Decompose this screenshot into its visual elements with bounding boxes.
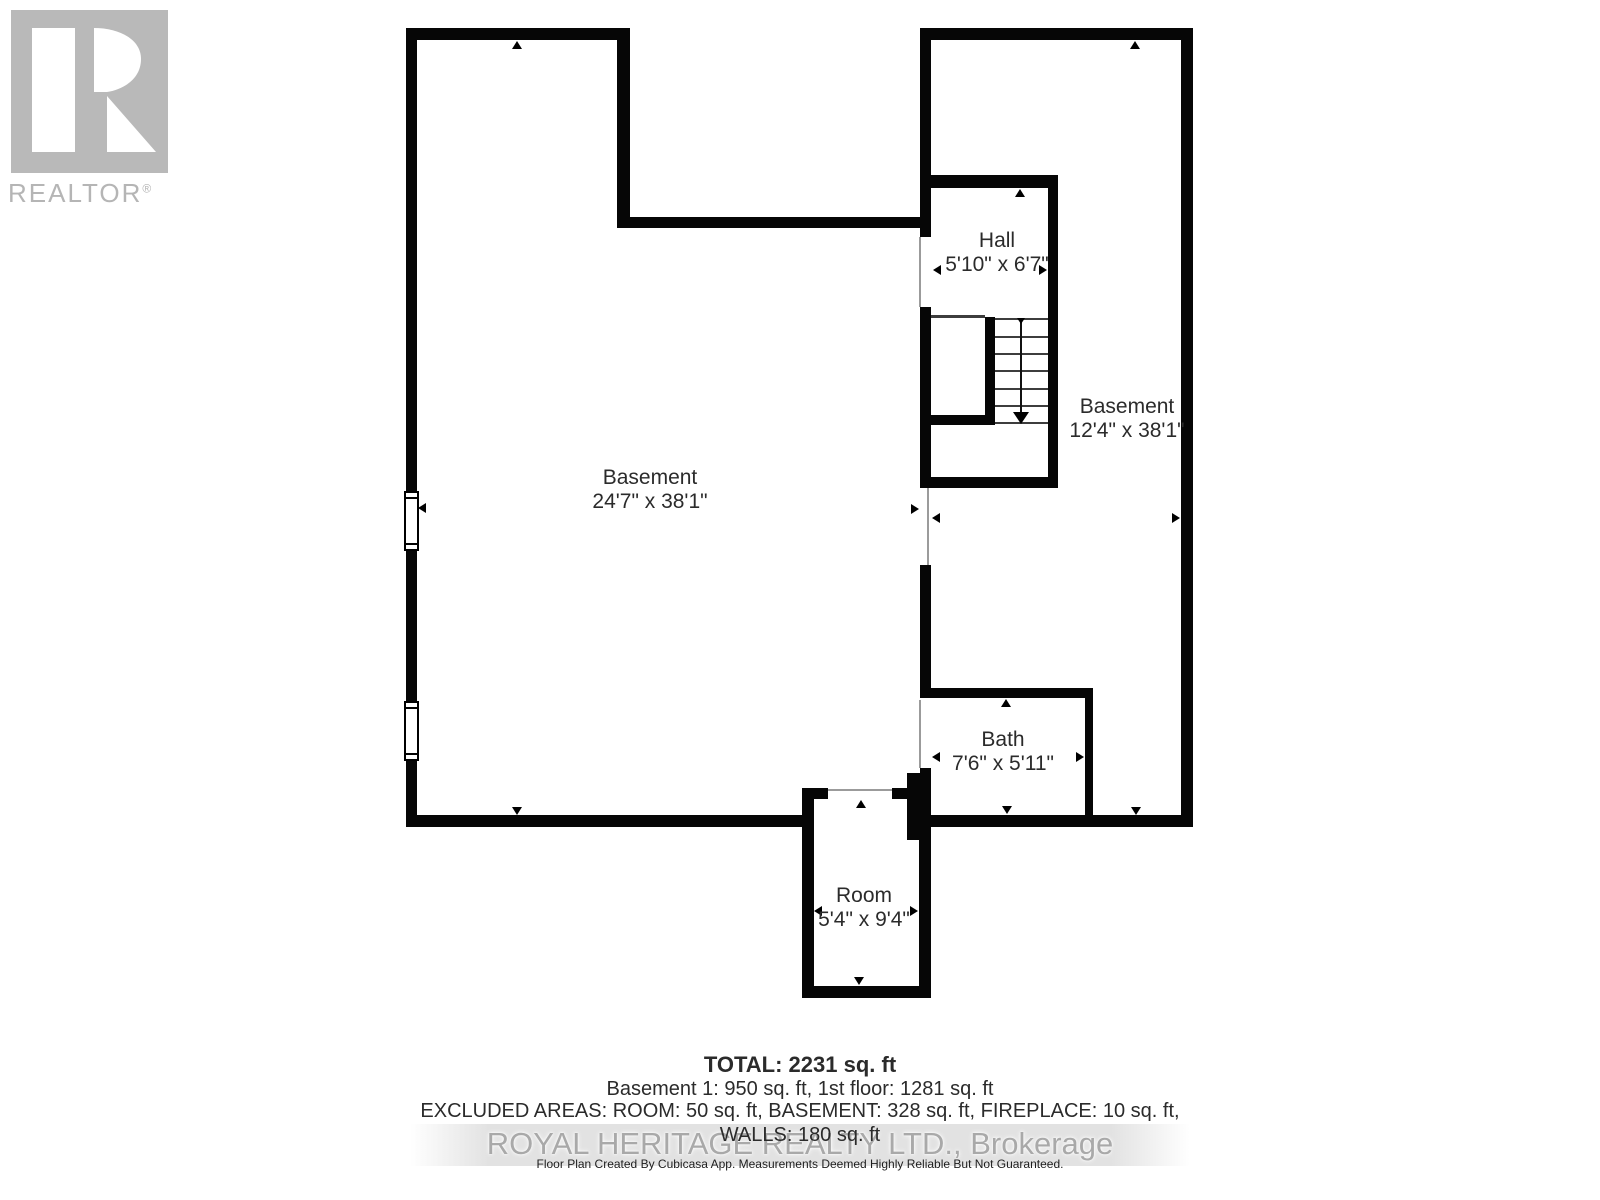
door-opening-hall (919, 237, 921, 307)
wall-top-right-section (920, 28, 1193, 40)
wall-notch-vertical (617, 28, 630, 228)
room-label-room: Room 5'4" x 9'4" (794, 884, 934, 932)
wall-room-bottom (802, 986, 931, 998)
room-dimensions: 7'6" x 5'11" (923, 752, 1083, 776)
room-dimensions: 5'4" x 9'4" (794, 908, 934, 932)
wall-understair-box-right (985, 317, 995, 425)
summary-walls: WALLS: 180 sq. ft (400, 1124, 1200, 1147)
room-dimensions: 12'4" x 38'1" (1027, 419, 1227, 443)
window (404, 701, 419, 761)
realtor-wordmark: REALTOR (8, 178, 142, 208)
wall-bath-top (920, 688, 1092, 698)
wall-bottom-left (406, 815, 802, 827)
room-label-hall: Hall 5'10" x 6'7" (927, 229, 1067, 277)
wall-top-left-section (406, 28, 630, 40)
wall-central-seg1 (920, 28, 931, 237)
measure-arrow-up-icon (1001, 699, 1011, 707)
measure-arrow-down-icon (1131, 807, 1141, 815)
window (404, 491, 419, 551)
realtor-logo-text: REALTOR® (8, 178, 198, 209)
realtor-logo (11, 10, 168, 178)
measure-arrow-up-icon (856, 800, 866, 808)
wall-room-top-stub-right (892, 788, 907, 799)
room-dimensions: 24'7" x 38'1" (550, 490, 750, 514)
wall-bath-right (1085, 688, 1093, 827)
measure-arrow-right-icon (1172, 513, 1180, 523)
room-label-basement-left: Basement 24'7" x 38'1" (550, 466, 750, 514)
measure-arrow-right-icon (911, 504, 919, 514)
measure-arrow-up-icon (1130, 41, 1140, 49)
room-label-basement-right: Basement 12'4" x 38'1" (1027, 395, 1227, 443)
wall-central-seg3 (920, 565, 931, 698)
summary-excluded: EXCLUDED AREAS: ROOM: 50 sq. ft, BASEMEN… (400, 1100, 1200, 1123)
door-opening-bath (919, 700, 921, 768)
door-opening-basements (927, 488, 929, 565)
summary-floors: Basement 1: 950 sq. ft, 1st floor: 1281 … (400, 1078, 1200, 1101)
registered-trademark-symbol: ® (142, 181, 153, 195)
wall-stair-enclosure-bottom (920, 477, 1058, 488)
wall-bottom-right (907, 815, 1193, 827)
stairs-direction-line (1020, 320, 1022, 416)
measure-arrow-down-icon (1002, 806, 1012, 814)
wall-room-top-stub-left (813, 788, 828, 799)
room-name: Basement (1027, 395, 1227, 419)
measure-arrow-up-icon (1015, 189, 1025, 197)
room-label-bath: Bath 7'6" x 5'11" (923, 728, 1083, 776)
stairs-start-tick-icon (1017, 318, 1025, 324)
measure-arrow-down-icon (854, 977, 864, 985)
disclaimer-text: Floor Plan Created By Cubicasa App. Meas… (400, 1157, 1200, 1171)
room-name: Basement (550, 466, 750, 490)
realtor-r-icon (11, 10, 168, 173)
room-dimensions: 5'10" x 6'7" (927, 253, 1067, 277)
wall-hall-top (920, 175, 1058, 188)
summary-total: TOTAL: 2231 sq. ft (400, 1052, 1200, 1078)
measure-arrow-left-icon (932, 513, 940, 523)
room-name: Room (794, 884, 934, 908)
floor-plan-page: REALTOR® (0, 0, 1600, 1200)
room-name: Hall (927, 229, 1067, 253)
room-name: Bath (923, 728, 1083, 752)
wall-notch-horizontal (617, 217, 930, 228)
measure-arrow-up-icon (512, 41, 522, 49)
door-opening-room (828, 789, 892, 791)
measure-arrow-down-icon (512, 807, 522, 815)
understair-box-top-line (931, 315, 985, 318)
measure-arrow-left-icon (418, 503, 426, 513)
wall-understair-box-bottom (931, 415, 995, 425)
wall-central-seg2 (920, 307, 931, 488)
